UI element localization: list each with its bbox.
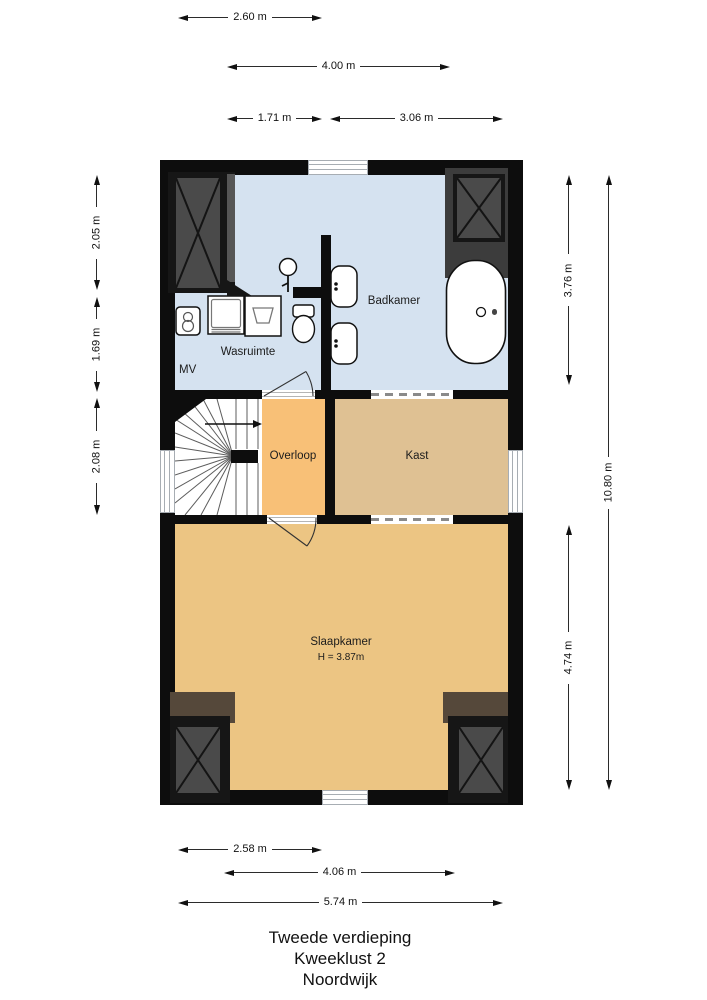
arrow-up-icon [566, 525, 572, 535]
arrow-down-icon [566, 780, 572, 790]
door-opening-slaapkamer [267, 515, 317, 524]
dimension-line [96, 307, 97, 319]
dimension-label: 3.06 m [395, 112, 439, 125]
interior-wall [453, 390, 508, 399]
dimension-line [96, 259, 97, 281]
kast-opening-top [371, 390, 453, 399]
stairs-direction-arrow-icon [205, 420, 262, 428]
dimension-right-2: 10.80 m [602, 175, 615, 790]
arrow-up-icon [94, 175, 100, 185]
arrow-down-icon [606, 780, 612, 790]
arrow-down-icon [94, 382, 100, 392]
dimension-line [568, 185, 569, 254]
dimension-bottom-3: 5.74 m [178, 896, 503, 909]
window-right [508, 450, 523, 513]
dimension-left-2: 1.69 m [90, 297, 103, 392]
outer-wall-right-upper [508, 175, 523, 450]
title-city: Noordwijk [190, 969, 490, 990]
dimension-line [272, 17, 312, 18]
dimension-label: 1.69 m [90, 326, 103, 364]
arrow-left-icon [224, 870, 234, 876]
dimension-right-3: 4.74 m [562, 525, 575, 790]
arrow-right-icon [312, 847, 322, 853]
floor-plan-page: Badkamer Wasruimte MV Overloop Kast Slaa… [0, 0, 707, 1000]
dimension-line [237, 118, 253, 119]
arrow-right-icon [493, 900, 503, 906]
arrow-right-icon [445, 870, 455, 876]
laundry-sink-icon [244, 295, 282, 337]
title-address: Kweeklust 2 [190, 948, 490, 969]
dimension-label: 1.71 m [253, 112, 297, 125]
dimension-label: 4.74 m [562, 639, 575, 677]
arrow-left-icon [178, 15, 188, 21]
dimension-top-2: 4.00 m [227, 60, 450, 73]
arrow-right-icon [312, 15, 322, 21]
dimension-label: 4.00 m [317, 60, 361, 73]
dimension-line [188, 849, 228, 850]
dimension-line [438, 118, 493, 119]
arrow-right-icon [440, 64, 450, 70]
dimension-line [188, 902, 319, 903]
title-floor: Tweede verdieping [190, 927, 490, 948]
arrow-left-icon [227, 64, 237, 70]
dimension-line [96, 371, 97, 383]
toilet-icon [290, 304, 317, 344]
dimension-bottom-2: 4.06 m [224, 866, 455, 879]
arrow-up-icon [606, 175, 612, 185]
dimension-label: 5.74 m [319, 896, 363, 909]
wardrobe-x-icon [176, 178, 220, 288]
room-label-overloop: Overloop [253, 450, 333, 462]
dimension-label: 2.60 m [228, 11, 272, 24]
dimension-line [296, 118, 312, 119]
room-label-wasruimte: Wasruimte [198, 346, 298, 358]
interior-wall [453, 515, 508, 524]
arrow-down-icon [94, 505, 100, 515]
title-block: Tweede verdieping Kweeklust 2 Noordwijk [190, 927, 490, 990]
interior-wall [175, 515, 267, 524]
arrow-left-icon [178, 900, 188, 906]
dimension-top-4: 3.06 m [330, 112, 503, 125]
arrow-up-icon [94, 398, 100, 408]
dimension-line [568, 306, 569, 375]
room-label-kast: Kast [377, 450, 457, 462]
arrow-down-icon [566, 375, 572, 385]
window-left [160, 450, 175, 513]
dimension-right-1: 3.76 m [562, 175, 575, 385]
arrow-left-icon [330, 116, 340, 122]
hand-basin-icon [175, 306, 201, 336]
dimension-line [362, 902, 493, 903]
dimension-label: 2.08 m [90, 438, 103, 476]
dimension-line [96, 185, 97, 207]
kast-opening-bottom [371, 515, 453, 524]
wardrobe-x-icon [176, 727, 220, 793]
arrow-up-icon [566, 175, 572, 185]
room-label-badkamer: Badkamer [344, 295, 444, 307]
shower-icon [275, 250, 301, 296]
dimension-label: 3.76 m [562, 261, 575, 299]
dimension-line [272, 849, 312, 850]
dimension-label: 10.80 m [602, 461, 615, 505]
interior-wall [315, 390, 371, 399]
interior-wall [321, 235, 331, 390]
bathtub-icon [445, 259, 507, 365]
wardrobe-x-icon [453, 174, 505, 242]
dimension-line [608, 185, 609, 457]
arrow-up-icon [94, 297, 100, 307]
sink-icon [330, 322, 358, 365]
dimension-left-1: 2.05 m [90, 175, 103, 290]
window-top [308, 160, 368, 175]
dimension-label: 2.05 m [90, 214, 103, 252]
dimension-label: 2.58 m [228, 843, 272, 856]
dimension-top-1: 2.60 m [178, 11, 322, 24]
dimension-label: 4.06 m [318, 866, 362, 879]
room-label-mv: MV [179, 364, 209, 376]
dimension-line [361, 872, 445, 873]
dimension-left-3: 2.08 m [90, 398, 103, 515]
arrow-left-icon [178, 847, 188, 853]
dimension-line [96, 408, 97, 431]
dimension-line [188, 17, 228, 18]
outer-wall-right-lower [508, 513, 523, 790]
dimension-line [234, 872, 318, 873]
washing-machine-icon [207, 295, 245, 335]
dimension-line [608, 509, 609, 781]
arrow-down-icon [94, 280, 100, 290]
door-opening-wasruimte [262, 390, 315, 399]
arrow-right-icon [312, 116, 322, 122]
interior-wall [317, 515, 371, 524]
dimension-bottom-1: 2.58 m [178, 843, 322, 856]
dimension-line [568, 684, 569, 781]
dimension-line [96, 483, 97, 506]
interior-wall [175, 390, 262, 399]
window-bottom [322, 790, 368, 805]
dimension-line [360, 66, 440, 67]
dimension-line [237, 66, 317, 67]
room-height-note: H = 3.87m [291, 652, 391, 663]
arrow-right-icon [493, 116, 503, 122]
wardrobe-x-icon [459, 727, 503, 793]
room-label-slaapkamer: Slaapkamer [291, 636, 391, 648]
dimension-line [568, 535, 569, 632]
dimension-line [340, 118, 395, 119]
arrow-left-icon [227, 116, 237, 122]
dimension-top-3: 1.71 m [227, 112, 322, 125]
stairs-icon [175, 399, 262, 515]
